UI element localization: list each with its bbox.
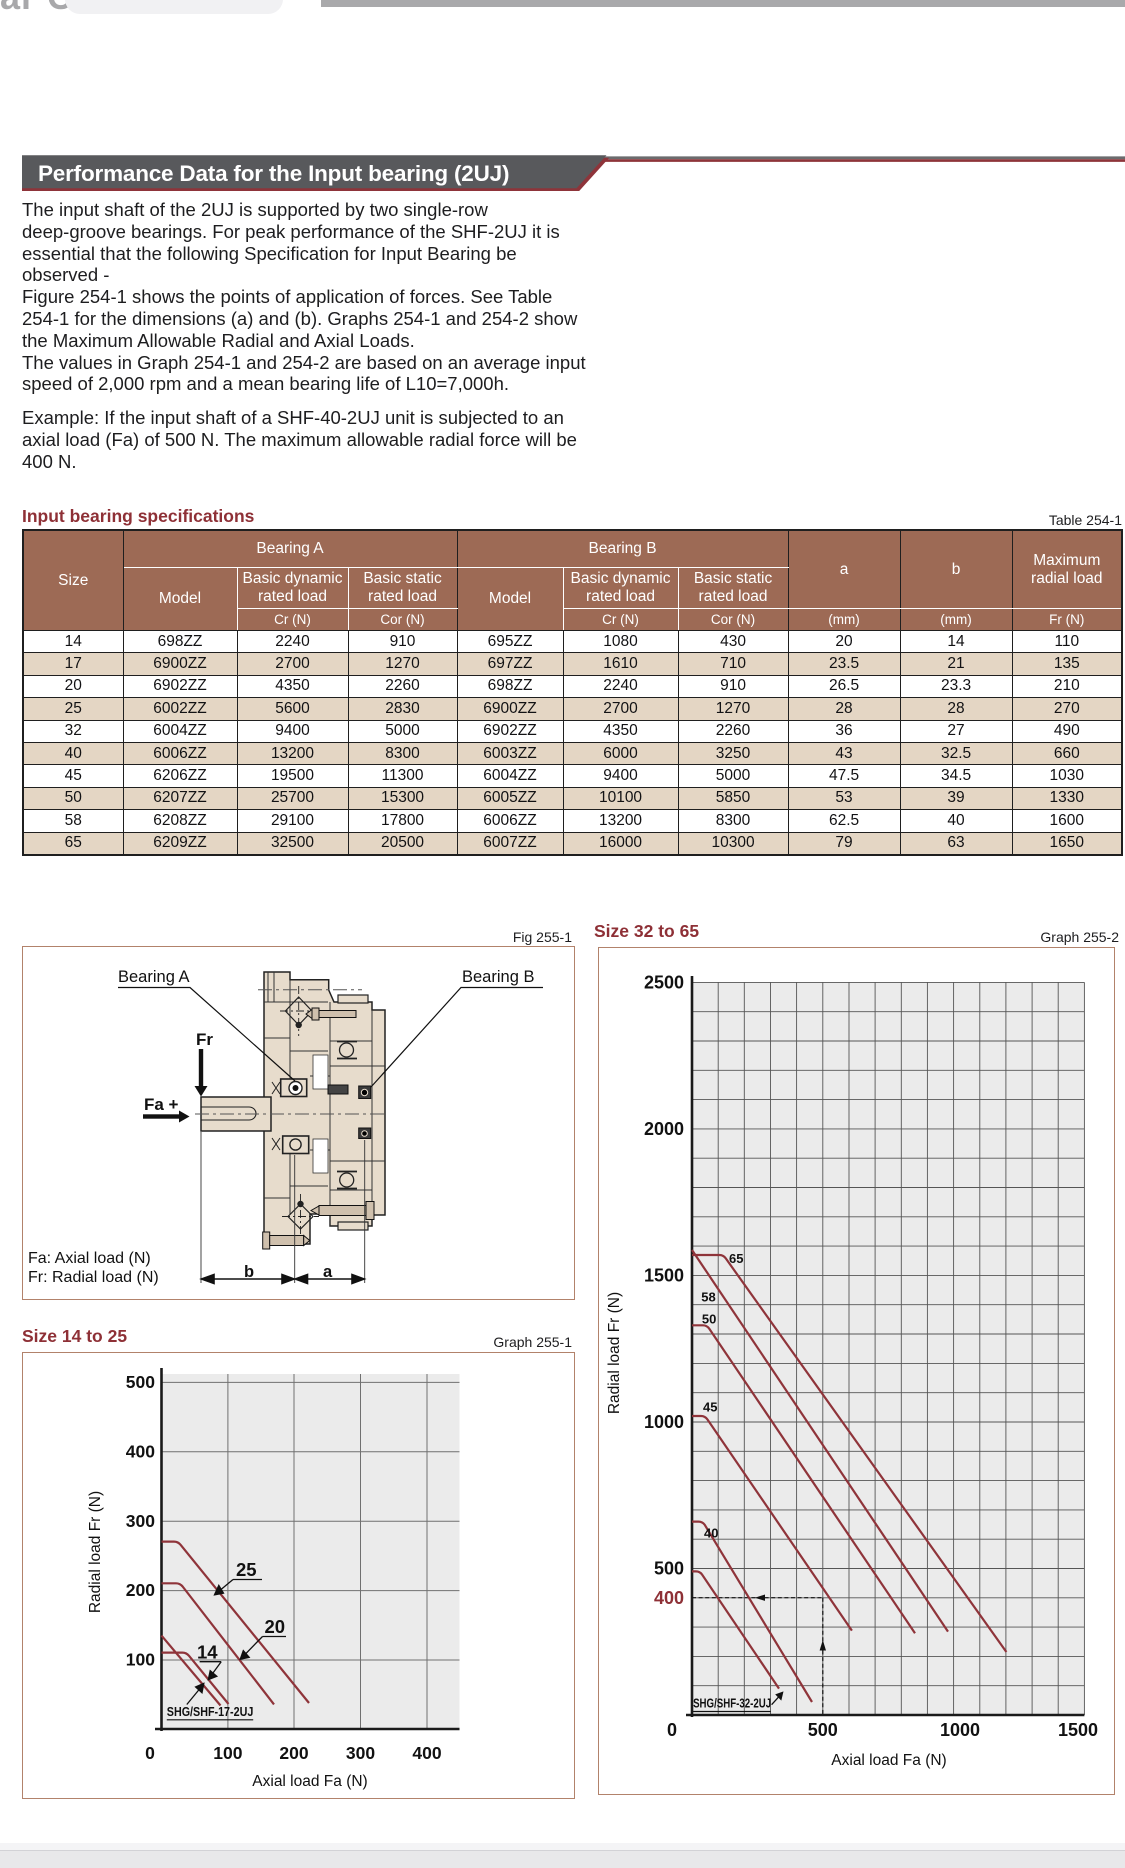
svg-text:Bearing A: Bearing A <box>118 968 190 986</box>
svg-text:Fr: Radial load (N): Fr: Radial load (N) <box>28 1269 159 1286</box>
svg-text:SHG/SHF-32-2UJ: SHG/SHF-32-2UJ <box>693 1697 771 1711</box>
svg-text:Axial load Fa (N): Axial load Fa (N) <box>252 1773 367 1790</box>
svg-text:Bearing B: Bearing B <box>462 968 534 986</box>
svg-text:0: 0 <box>667 1720 677 1740</box>
svg-text:40: 40 <box>704 1526 718 1541</box>
svg-text:400: 400 <box>412 1743 441 1763</box>
svg-text:400: 400 <box>654 1588 684 1608</box>
svg-text:1000: 1000 <box>644 1412 684 1432</box>
svg-text:1500: 1500 <box>644 1265 684 1285</box>
svg-text:100: 100 <box>126 1650 155 1670</box>
svg-text:b: b <box>244 1263 254 1281</box>
svg-text:14: 14 <box>197 1642 218 1663</box>
svg-text:500: 500 <box>654 1558 684 1578</box>
svg-text:500: 500 <box>126 1372 155 1392</box>
svg-text:300: 300 <box>126 1511 155 1531</box>
svg-text:400: 400 <box>126 1441 155 1461</box>
svg-text:Fa +: Fa + <box>144 1095 179 1114</box>
svg-text:Fr: Fr <box>196 1030 213 1049</box>
svg-text:Fa: Axial load (N): Fa: Axial load (N) <box>28 1250 151 1267</box>
svg-text:200: 200 <box>126 1580 155 1600</box>
svg-text:Radial load Fr (N): Radial load Fr (N) <box>87 1491 104 1613</box>
svg-text:Radial load Fr (N): Radial load Fr (N) <box>606 1292 623 1414</box>
svg-text:20: 20 <box>265 1616 286 1637</box>
svg-text:2500: 2500 <box>644 972 684 992</box>
svg-text:65: 65 <box>729 1251 743 1266</box>
svg-text:SHG/SHF-17-2UJ: SHG/SHF-17-2UJ <box>167 1704 254 1719</box>
svg-text:200: 200 <box>279 1743 308 1763</box>
svg-text:500: 500 <box>808 1720 838 1740</box>
svg-text:a: a <box>323 1263 333 1281</box>
svg-text:25: 25 <box>236 1559 257 1580</box>
svg-text:2000: 2000 <box>644 1119 684 1139</box>
svg-text:100: 100 <box>213 1743 242 1763</box>
svg-text:Performance Data for the Input: Performance Data for the Input bearing (… <box>38 161 509 186</box>
svg-text:45: 45 <box>703 1400 717 1415</box>
svg-text:0: 0 <box>145 1743 155 1763</box>
svg-text:58: 58 <box>701 1290 715 1305</box>
svg-text:50: 50 <box>702 1312 716 1327</box>
svg-text:1500: 1500 <box>1058 1720 1098 1740</box>
svg-text:Axial load Fa (N): Axial load Fa (N) <box>831 1752 946 1769</box>
svg-text:1000: 1000 <box>940 1720 980 1740</box>
svg-text:300: 300 <box>346 1743 375 1763</box>
